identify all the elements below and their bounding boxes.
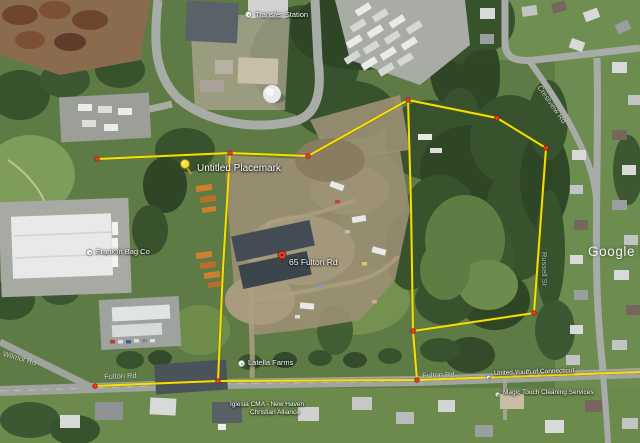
transfer-station-poi-icon[interactable]	[245, 11, 252, 18]
road-label-fulton-left: Fulton Rd	[104, 372, 137, 381]
poi-label-latella-farms[interactable]: Latella Farms	[248, 359, 293, 367]
poi-label-transfer-station[interactable]: Transfer Station	[255, 11, 308, 19]
yellow-pushpin-icon[interactable]	[179, 158, 195, 181]
franklin-poi-icon[interactable]	[86, 249, 93, 256]
placemark-label-address[interactable]: 65 Fulton Rd	[289, 258, 338, 267]
poi-label-magic-touch[interactable]: Magic Touch Cleaning Services	[503, 390, 594, 397]
midleft-lot	[99, 296, 182, 350]
google-earth-watermark: Google Ea	[588, 245, 640, 259]
placemark-label-untitled[interactable]: Untitled Placemark	[197, 164, 281, 174]
road-label-fulton-right: Fulton Rd	[422, 371, 455, 380]
road-label-russell: Russell St	[541, 252, 549, 286]
poi-label-iglesia-line1[interactable]: Iglesia CMA - New Haven	[230, 402, 304, 409]
satellite-imagery	[0, 0, 640, 443]
united-poi-icon[interactable]	[486, 375, 491, 380]
poi-label-franklin-bag[interactable]: Franklin Bag Co	[96, 248, 150, 256]
poi-label-iglesia-line2[interactable]: Christian Alliance	[250, 410, 300, 417]
address-marker-icon[interactable]	[276, 250, 288, 269]
magic-poi-icon[interactable]	[495, 392, 500, 397]
latella-poi-icon[interactable]	[238, 360, 245, 367]
satellite-map[interactable]: Transfer Station Franklin Bag Co Untitle…	[0, 0, 640, 443]
